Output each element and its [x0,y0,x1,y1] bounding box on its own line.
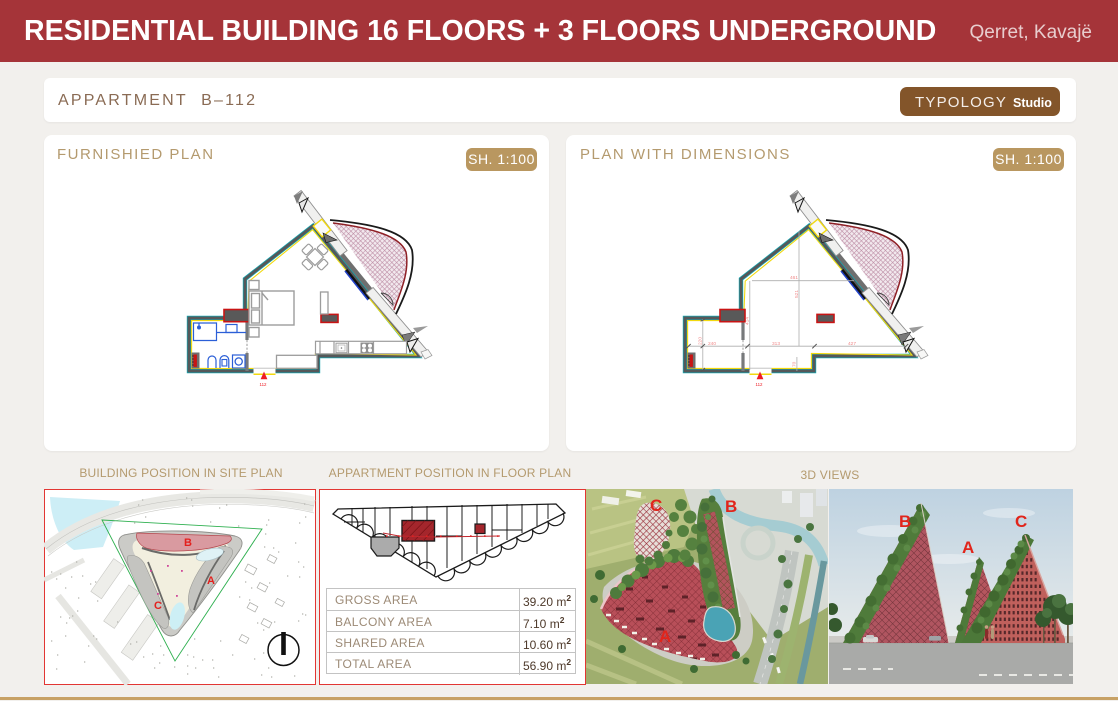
svg-text:70: 70 [792,361,798,367]
svg-text:427: 427 [848,341,856,347]
svg-text:C: C [1015,512,1027,531]
svg-text:414: 414 [744,317,750,325]
svg-text:313: 313 [772,341,780,347]
svg-text:C: C [650,496,662,515]
svg-text:521: 521 [794,290,800,298]
svg-text:B: B [184,537,192,549]
svg-text:A: A [207,575,215,587]
svg-text:C: C [154,600,162,612]
svg-text:112: 112 [756,382,764,387]
svg-text:A: A [962,538,974,557]
svg-text:B: B [725,497,737,516]
svg-text:A: A [659,627,671,646]
svg-text:112: 112 [260,382,268,387]
svg-text:B: B [899,512,911,531]
svg-text:461: 461 [790,275,798,281]
svg-text:220: 220 [698,337,704,345]
svg-text:240: 240 [708,341,716,347]
